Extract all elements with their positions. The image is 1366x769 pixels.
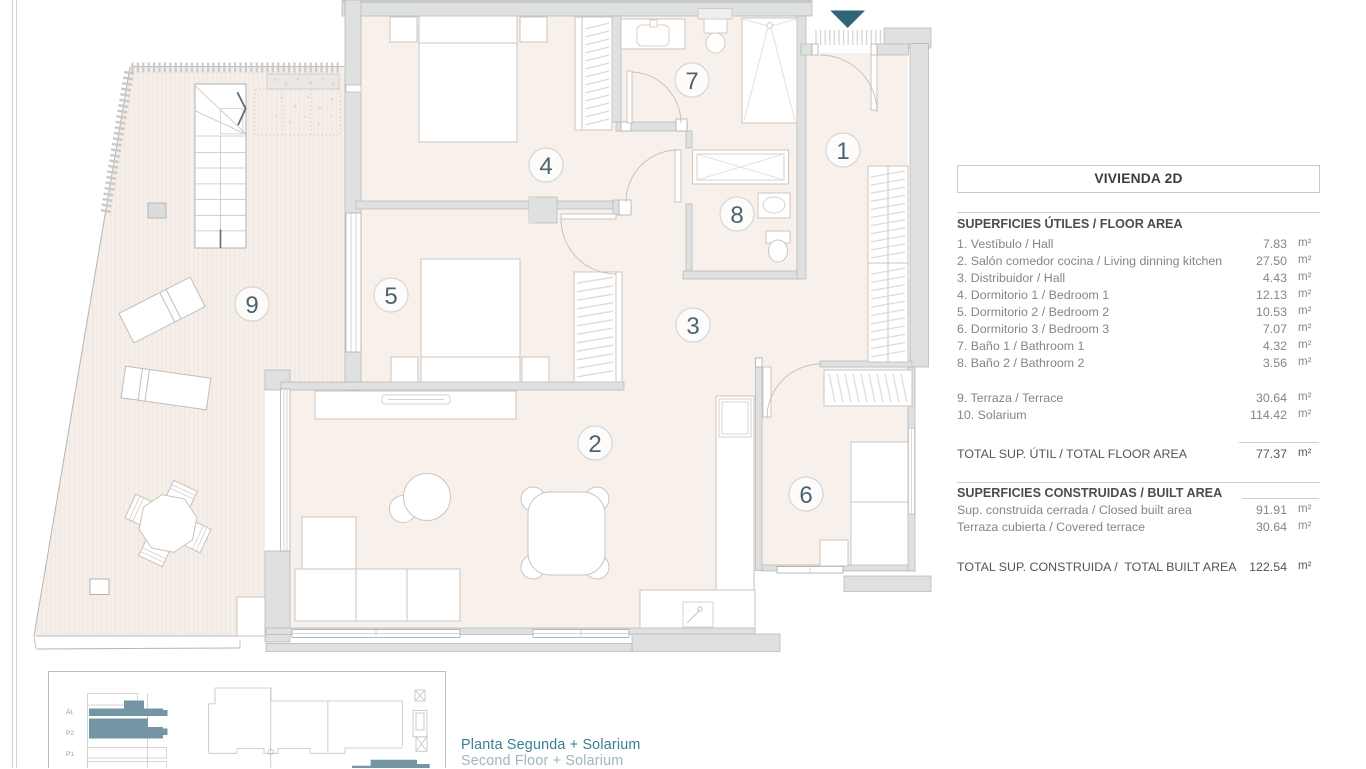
- svg-text:7: 7: [685, 68, 698, 95]
- svg-text:8: 8: [730, 202, 743, 229]
- svg-text:9: 9: [245, 292, 258, 319]
- svg-text:4: 4: [539, 153, 552, 180]
- svg-text:2: 2: [588, 431, 601, 458]
- svg-text:Át.: Át.: [66, 707, 74, 716]
- svg-text:1: 1: [836, 138, 849, 165]
- svg-text:5: 5: [384, 283, 397, 310]
- svg-text:6: 6: [799, 482, 812, 509]
- svg-text:P1: P1: [66, 751, 74, 758]
- svg-text:3: 3: [686, 313, 699, 340]
- svg-text:P2: P2: [66, 730, 74, 737]
